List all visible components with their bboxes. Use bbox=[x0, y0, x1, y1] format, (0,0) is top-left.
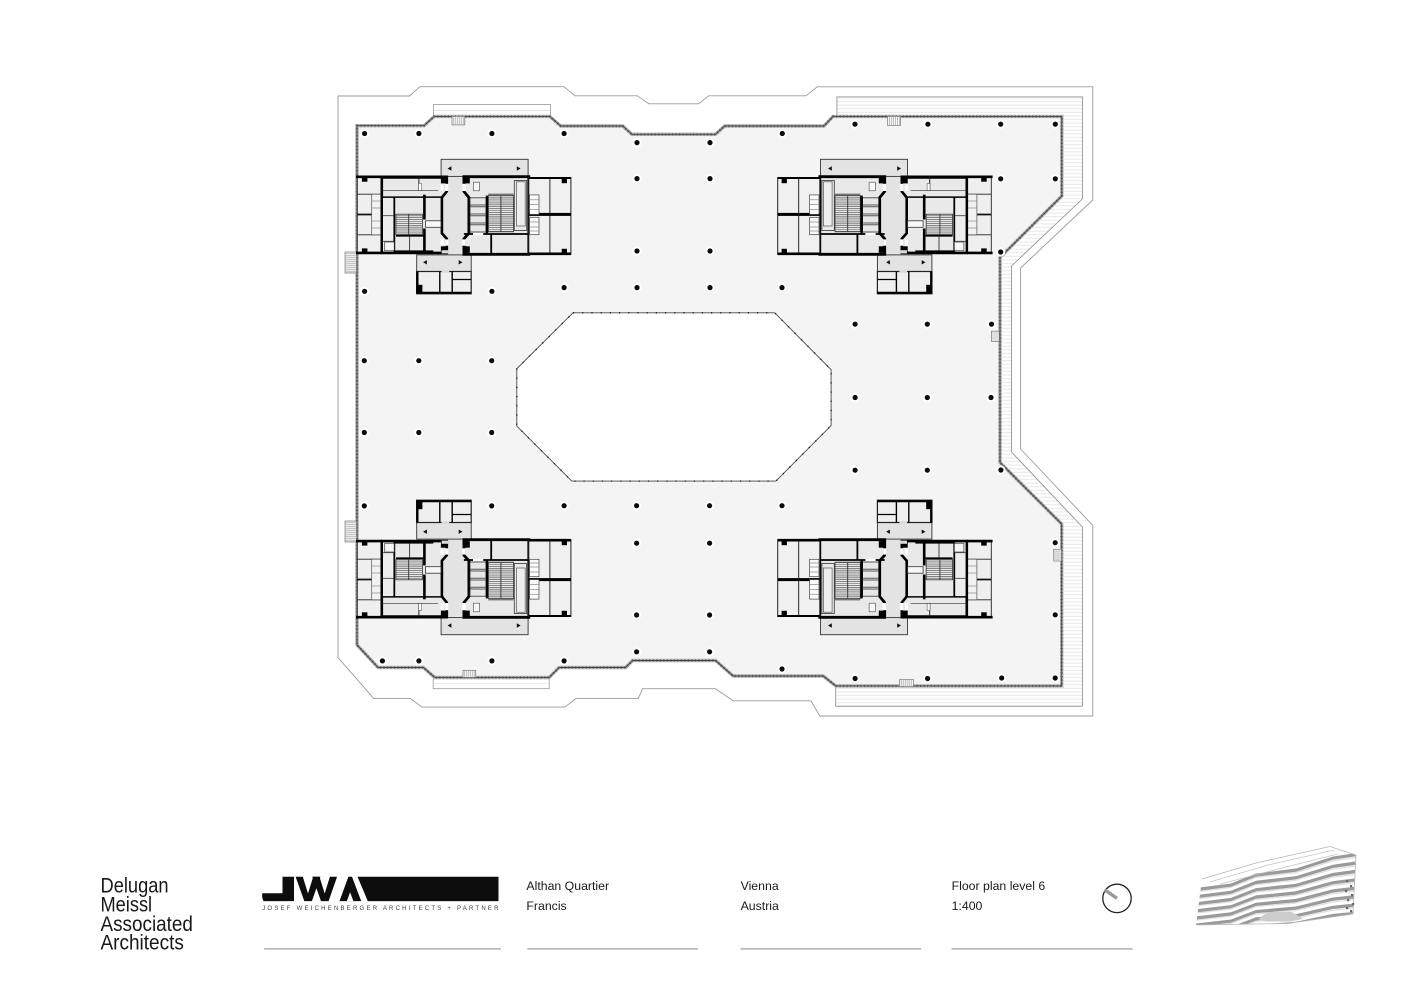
svg-text:Vienna: Vienna bbox=[741, 879, 779, 893]
svg-text:Floor plan level 6: Floor plan level 6 bbox=[952, 879, 1046, 893]
svg-text:Austria: Austria bbox=[741, 899, 779, 913]
svg-text:Architects: Architects bbox=[101, 931, 184, 955]
svg-text:Francis: Francis bbox=[526, 899, 566, 913]
svg-text:Althan Quartier: Althan Quartier bbox=[526, 879, 609, 893]
svg-text:1:400: 1:400 bbox=[952, 899, 983, 913]
